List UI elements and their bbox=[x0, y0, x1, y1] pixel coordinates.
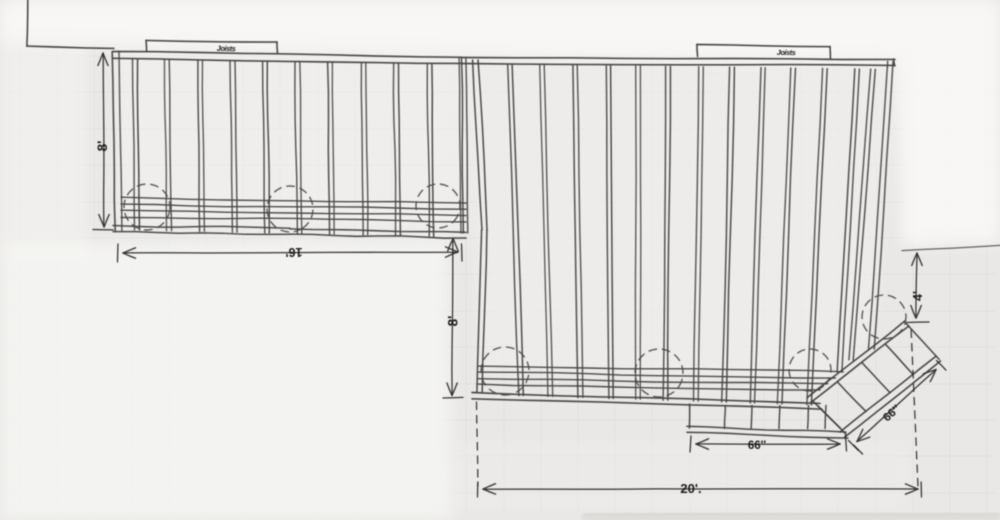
svg-text:8': 8' bbox=[446, 316, 461, 327]
svg-text:Joists: Joists bbox=[777, 48, 796, 57]
svg-text:16': 16' bbox=[286, 245, 303, 259]
svg-text:4': 4' bbox=[911, 291, 925, 301]
svg-text:66'': 66'' bbox=[748, 440, 767, 452]
svg-text:8': 8' bbox=[95, 141, 110, 152]
svg-text:Joists: Joists bbox=[217, 44, 236, 53]
svg-text:20'.: 20'. bbox=[680, 481, 701, 496]
